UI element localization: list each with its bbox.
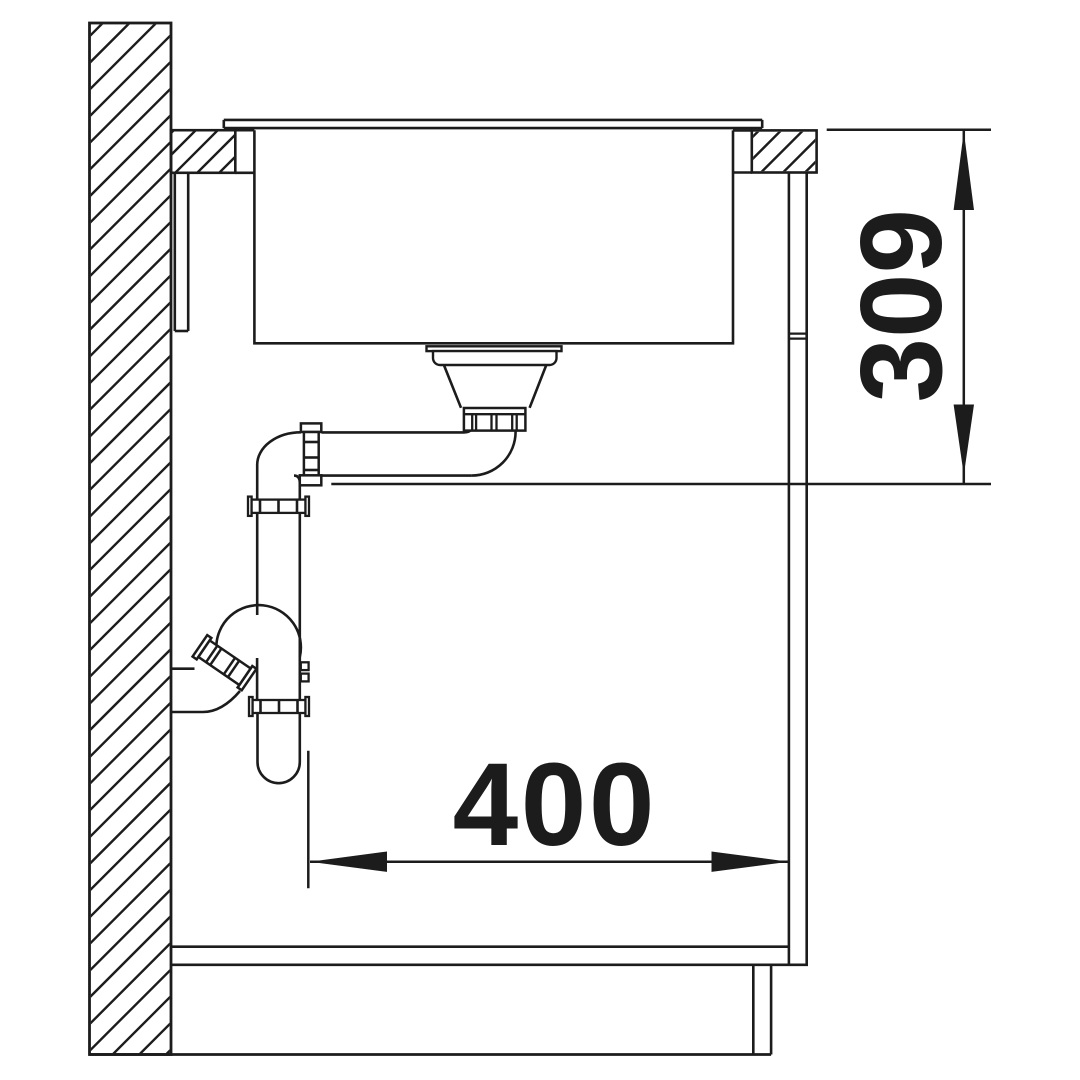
- svg-text:400: 400: [453, 739, 657, 871]
- svg-text:309: 309: [836, 209, 966, 403]
